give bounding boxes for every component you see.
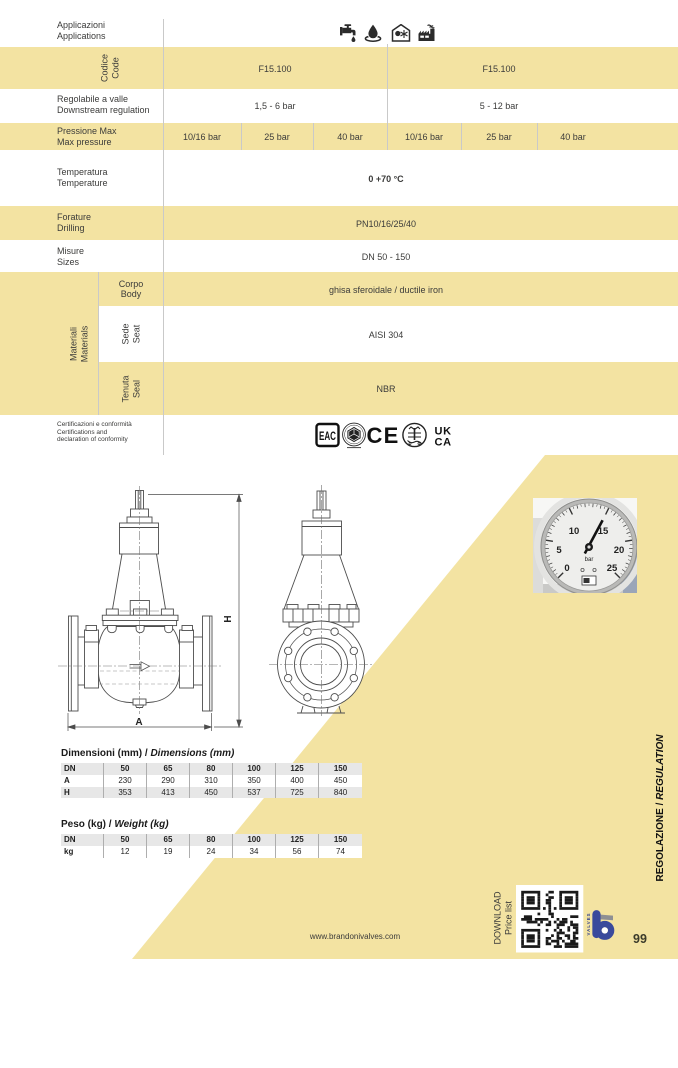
svg-text:15: 15 [598,526,609,537]
svg-text:5: 5 [556,545,562,556]
svg-text:CE: CE [367,423,400,448]
svg-text:0: 0 [564,563,569,574]
svg-text:10: 10 [569,526,580,537]
svg-text:EAC: EAC [319,431,336,443]
svg-text:20: 20 [614,545,625,556]
svg-text:H: H [223,615,234,622]
svg-text:bar: bar [585,557,594,563]
svg-text:VALVES: VALVES [586,912,591,935]
svg-text:CA: CA [435,437,452,449]
svg-text:A: A [135,717,142,728]
svg-text:25: 25 [607,563,618,574]
